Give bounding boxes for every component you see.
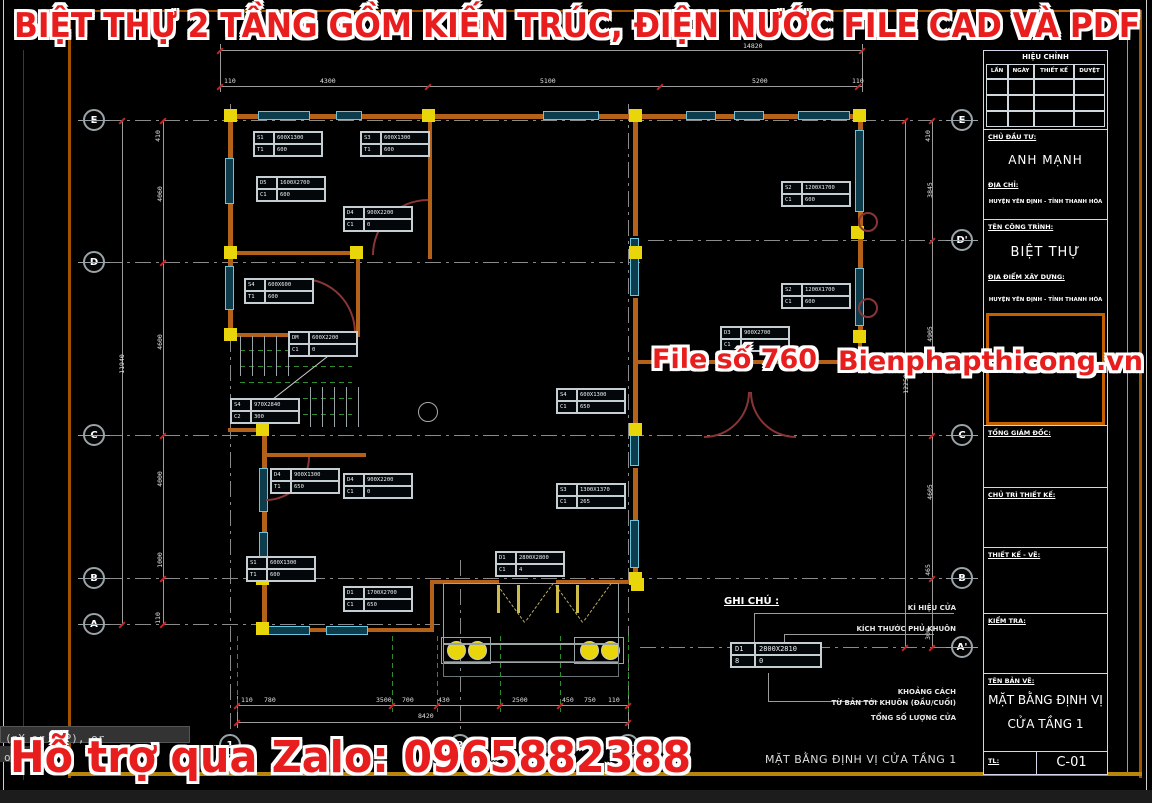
opening-tag-cell: 4 <box>516 564 564 576</box>
opening-tag: D11700X2700C1650 <box>343 586 413 612</box>
opening-tag-cell: 970X2840 <box>251 399 299 411</box>
opening-tag-cell: D3 <box>721 327 741 339</box>
opening-tag-cell: DM <box>289 332 309 344</box>
legend-tag-count: 8 <box>731 655 755 667</box>
door-swing-arc <box>704 392 750 438</box>
rev-col-duyet: DUYỆT <box>1074 64 1105 79</box>
dimension-line <box>237 705 628 706</box>
dimension-tick <box>656 83 663 90</box>
wall-segment <box>356 251 360 337</box>
opening-tag-cell: D4 <box>271 469 291 481</box>
watermark-title: BIỆT THỰ 2 TẦNG GỒM KIẾN TRÚC, ĐIỆN NƯỚC… <box>14 6 1140 46</box>
porch-step-edge <box>443 661 619 677</box>
opening-tag-cell: S4 <box>557 389 577 401</box>
drawing-label: TÊN BẢN VẼ: <box>988 677 1034 685</box>
dimension-line <box>220 86 862 87</box>
opening-tag-cell: S2 <box>782 182 802 194</box>
opening-tag-cell: C1 <box>557 496 577 508</box>
rev-cell <box>1074 79 1105 95</box>
dimension-text: 110 <box>241 696 253 704</box>
column-marker <box>629 246 642 259</box>
legend-label-3: KHOẢNG CÁCH <box>856 688 956 696</box>
window-symbol <box>336 111 362 120</box>
legend-tag: D1 2800X2810 8 0 <box>730 642 822 668</box>
opening-tag-cell: D1 <box>496 552 516 564</box>
opening-tag: S4600X600T1600 <box>244 278 314 304</box>
window-symbol <box>630 520 639 568</box>
rev-cell <box>1034 111 1074 127</box>
plan-caption: MẶT BẰNG ĐỊNH VỊ CỬA TẦNG 1 <box>765 753 980 766</box>
dimension-line <box>220 50 862 51</box>
opening-tag-cell: C1 <box>782 296 802 308</box>
scale-label: TL: <box>988 757 999 765</box>
opening-tag-cell: 1700X2700 <box>364 587 412 599</box>
opening-tag-cell: 600X1300 <box>381 132 429 144</box>
stair-dashed-line <box>240 382 352 383</box>
column-marker <box>256 622 269 635</box>
investor-label: CHỦ ĐẦU TƯ: <box>988 133 1036 141</box>
window-symbol <box>543 111 599 120</box>
opening-tag-cell: D4 <box>344 207 364 219</box>
dimension-text: 110 <box>852 77 864 85</box>
stair-tread <box>276 336 277 376</box>
opening-tag-cell: 600 <box>802 194 850 206</box>
window-symbol <box>268 626 310 635</box>
drawing-name-line1: MẶT BẰNG ĐỊNH VỊ <box>984 693 1107 707</box>
opening-tag-cell: S4 <box>231 399 251 411</box>
legend-tag-code: D1 <box>731 643 755 655</box>
opening-tag: D12800X2800C14 <box>495 551 565 577</box>
grid-bubble-tick <box>946 435 978 436</box>
window-symbol <box>855 268 864 326</box>
opening-tag-cell: T1 <box>245 291 265 303</box>
opening-tag-cell: S1 <box>254 132 274 144</box>
opening-tag-cell: D5 <box>257 177 277 189</box>
stair-tread <box>310 387 311 427</box>
opening-tag-cell: 650 <box>577 401 625 413</box>
window-symbol <box>686 111 716 120</box>
dimension-text: 3845 <box>926 182 934 198</box>
legend-leader-1v <box>754 613 755 643</box>
watermark-zalo: Hỗ trợ qua Zalo: 0965882388 <box>10 732 691 783</box>
grid-line-horizontal <box>106 262 640 263</box>
watermark-site: Bienphapthicong.vn <box>838 346 1143 377</box>
grid-bubble-tick <box>78 624 110 625</box>
floor-plan: EDCBAED'CBA'1231482011043005100520011084… <box>0 0 1152 803</box>
opening-tag: S1600X1300T1600 <box>246 556 316 582</box>
opening-tag: D4900X2200C10 <box>343 206 413 232</box>
section-investor <box>984 129 1107 219</box>
opening-tag: D4900X2200C10 <box>343 473 413 499</box>
opening-tag: S21200X1700C1600 <box>781 181 851 207</box>
rev-col-thietke: THIẾT KẾ <box>1034 64 1074 79</box>
rev-cell <box>1074 111 1105 127</box>
opening-tag: DM600X2200C10 <box>288 331 358 357</box>
wall-segment <box>633 114 638 236</box>
window-symbol <box>326 626 368 635</box>
opening-tag-cell: C1 <box>557 401 577 413</box>
opening-tag: D51600X2700C1600 <box>256 176 326 202</box>
dimension-text: 110 <box>224 77 236 85</box>
dimension-text: 2500 <box>512 696 528 704</box>
column-marker <box>422 109 435 122</box>
opening-tag-cell: 2800X2800 <box>516 552 564 564</box>
extension-line <box>237 636 238 712</box>
door-leaf <box>517 585 520 613</box>
dimension-text: 8420 <box>418 712 434 720</box>
dimension-text: 4000 <box>156 471 164 487</box>
revision-title: HIỆU CHỈNH <box>984 53 1107 61</box>
stair-dashed-line <box>240 366 352 367</box>
address-label: ĐỊA CHỈ: <box>988 181 1018 189</box>
rev-cell <box>1034 95 1074 111</box>
autocad-canvas: EDCBAED'CBA'1231482011043005100520011084… <box>0 0 1152 803</box>
dimension-text: 4300 <box>320 77 336 85</box>
lead-label: CHỦ TRÌ THIẾT KẾ: <box>988 491 1055 499</box>
dimension-text: 465 <box>924 564 932 576</box>
legend-label-5: TỔNG SỐ LƯỢNG CỬA <box>826 714 956 722</box>
opening-tag-cell: S3 <box>557 484 577 496</box>
opening-tag-cell: 600X2200 <box>309 332 357 344</box>
opening-tag: D4900X1300T1650 <box>270 468 340 494</box>
dimension-text: 110 <box>608 696 620 704</box>
window-symbol <box>630 434 639 466</box>
opening-tag-cell: 600X1300 <box>577 389 625 401</box>
rev-cell <box>986 95 1008 111</box>
legend-title: GHI CHÚ : <box>724 596 779 607</box>
column-marker <box>224 246 237 259</box>
project-name: BIỆT THỰ <box>984 245 1107 260</box>
revision-table: LẦN NGÀY THIẾT KẾ DUYỆT <box>986 64 1105 128</box>
column-marker <box>629 423 642 436</box>
location-label: ĐỊA ĐIỂM XÂY DỰNG: <box>988 273 1065 281</box>
opening-tag-cell: C1 <box>782 194 802 206</box>
rev-cell <box>1034 79 1074 95</box>
opening-tag-cell: S4 <box>245 279 265 291</box>
opening-tag: S31300X1370C1265 <box>556 483 626 509</box>
column-marker <box>224 328 237 341</box>
rev-cell <box>1008 79 1034 95</box>
opening-tag-cell: D1 <box>344 587 364 599</box>
dimension-text: 780 <box>264 696 276 704</box>
opening-tag-cell: 0 <box>364 486 412 498</box>
drawing-name-line2: CỬA TẦNG 1 <box>984 717 1107 731</box>
column-marker <box>853 330 866 343</box>
grid-line-horizontal <box>106 578 952 579</box>
dimension-text: 450 <box>562 696 574 704</box>
stair-newel-circle <box>418 402 438 422</box>
grid-bubble-tick <box>78 578 110 579</box>
grid-bubble-tick <box>946 120 978 121</box>
grid-bubble-tick <box>78 262 110 263</box>
opening-tag-cell: 600 <box>802 296 850 308</box>
grid-line-horizontal <box>106 435 952 436</box>
dimension-text: 430 <box>438 696 450 704</box>
dimension-tick <box>424 83 431 90</box>
opening-tag-cell: 600 <box>381 144 429 156</box>
extension-line <box>628 636 629 712</box>
door-leaf <box>497 585 500 613</box>
legend-tag-size: 2800X2810 <box>755 643 821 655</box>
rev-col-ngay: NGÀY <box>1008 64 1034 79</box>
column-marker <box>256 423 269 436</box>
grid-bubble-tick <box>78 120 110 121</box>
window-symbol <box>855 130 864 212</box>
opening-tag-cell: S1 <box>247 557 267 569</box>
opening-tag-cell: T1 <box>271 481 291 493</box>
opening-tag-cell: 600 <box>274 144 322 156</box>
legend-leader-3 <box>768 673 769 701</box>
stair-tread <box>334 387 335 427</box>
grid-bubble-tick <box>946 578 978 579</box>
opening-tag-cell: 600 <box>265 291 313 303</box>
stair-tread <box>240 336 241 376</box>
opening-tag-cell: 900X1300 <box>291 469 339 481</box>
opening-tag-cell: 900X2700 <box>741 327 789 339</box>
opening-tag-cell: 1600X2700 <box>277 177 325 189</box>
opening-tag-cell: 600 <box>267 569 315 581</box>
sheet-number: C-01 <box>1036 755 1107 770</box>
window-symbol <box>258 111 310 120</box>
stair-tread <box>358 387 359 427</box>
opening-tag-cell: 1200X1700 <box>802 284 850 296</box>
dimension-text: 5100 <box>540 77 556 85</box>
window-symbol <box>734 111 764 120</box>
extension-line <box>392 636 393 712</box>
opening-tag-cell: C1 <box>257 189 277 201</box>
door-leaf <box>556 585 559 613</box>
opening-tag-cell: 900X2200 <box>364 474 412 486</box>
legend-ghi-chu: GHI CHÚ : KÍ HIỆU CỬA KÍCH THƯỚC PHỦ KHU… <box>718 596 968 726</box>
title-block: HIỆU CHỈNH LẦN NGÀY THIẾT KẾ DUYỆT CHỦ Đ… <box>983 50 1108 775</box>
dimension-text: 1000 <box>156 552 164 568</box>
opening-tag-cell: D4 <box>344 474 364 486</box>
grid-bubble-tick <box>78 435 110 436</box>
dimension-text: 4605 <box>926 484 934 500</box>
legend-label-2: KÍCH THƯỚC PHỦ KHUÔN <box>816 625 956 633</box>
investor-name: ANH MẠNH <box>984 153 1107 167</box>
dimension-line <box>237 722 628 723</box>
legend-tag-gap: 0 <box>755 655 821 667</box>
opening-tag-cell: T1 <box>247 569 267 581</box>
opening-tag: S1600X1300T1600 <box>253 131 323 157</box>
rev-cell <box>986 79 1008 95</box>
opening-tag-cell: T1 <box>361 144 381 156</box>
grid-line-horizontal <box>106 624 440 625</box>
wall-segment <box>430 580 434 632</box>
wall-segment <box>633 298 638 432</box>
opening-tag: S3600X1300T1600 <box>360 131 430 157</box>
dimension-text: 700 <box>402 696 414 704</box>
wall-segment <box>230 251 358 255</box>
legend-leader-2 <box>784 634 934 635</box>
address-value: HUYỆN YÊN ĐỊNH - TỈNH THANH HÓA <box>984 199 1107 205</box>
extension-line <box>500 636 501 712</box>
opening-tag-cell: 1300X1370 <box>577 484 625 496</box>
opening-tag-cell: S3 <box>361 132 381 144</box>
dimension-text: 110 <box>154 612 162 624</box>
opening-tag-cell: 600X1300 <box>267 557 315 569</box>
dimension-text: 4905 <box>926 326 934 342</box>
opening-tag-cell: S2 <box>782 284 802 296</box>
project-label: TÊN CÔNG TRÌNH: <box>988 223 1053 231</box>
dimension-text: 750 <box>584 696 596 704</box>
opening-tag-cell: 0 <box>364 219 412 231</box>
door-swing-arc <box>750 392 796 438</box>
opening-tag-cell: 0 <box>309 344 357 356</box>
opening-tag: S21200X1700C1600 <box>781 283 851 309</box>
dimension-text: 12250 <box>902 374 910 394</box>
column-marker <box>224 109 237 122</box>
stair-tread <box>346 387 347 427</box>
pilaster-symbol <box>858 298 878 318</box>
stair-tread <box>264 336 265 376</box>
dimension-tick <box>118 621 125 628</box>
pilaster-symbol <box>858 212 878 232</box>
dimension-line <box>932 120 933 647</box>
column-marker <box>350 246 363 259</box>
opening-tag-cell: C1 <box>496 564 516 576</box>
dimension-text: 410 <box>154 130 162 142</box>
opening-tag: S4970X2840C2300 <box>230 398 300 424</box>
grid-bubble-tick <box>946 240 978 241</box>
column-marker <box>631 578 644 591</box>
director-label: TỔNG GIÁM ĐỐC: <box>988 429 1051 437</box>
opening-tag-cell: T1 <box>254 144 274 156</box>
opening-tag-cell: 650 <box>364 599 412 611</box>
opening-tag-cell: 600X1300 <box>274 132 322 144</box>
opening-tag-cell: 600 <box>277 189 325 201</box>
design-label: THIẾT KẾ - VẼ: <box>988 551 1040 559</box>
column-marker <box>629 109 642 122</box>
extension-line <box>560 636 561 712</box>
opening-tag-cell: C1 <box>289 344 309 356</box>
window-symbol <box>225 158 234 204</box>
rev-col-lan: LẦN <box>986 64 1008 79</box>
opening-tag-cell: 265 <box>577 496 625 508</box>
rev-cell <box>1008 111 1034 127</box>
check-label: KIỂM TRA: <box>988 617 1026 625</box>
opening-tag: S4600X1300C1650 <box>556 388 626 414</box>
column-marker <box>853 109 866 122</box>
dimension-text: 410 <box>924 130 932 142</box>
dimension-text: 4060 <box>156 186 164 202</box>
opening-tag-cell: C1 <box>344 599 364 611</box>
opening-tag-cell: C1 <box>344 219 364 231</box>
stair-tread <box>322 387 323 427</box>
rev-cell <box>1008 95 1034 111</box>
porch-step-band <box>443 643 619 663</box>
watermark-file-no: File số 760 <box>652 344 817 375</box>
rev-cell <box>1074 95 1105 111</box>
dimension-text: 4600 <box>156 334 164 350</box>
location-value: HUYỆN YÊN ĐỊNH - TỈNH THANH HÓA <box>984 297 1107 303</box>
window-symbol <box>798 111 850 120</box>
opening-tag-cell: 1200X1700 <box>802 182 850 194</box>
legend-label-4: TỪ BẢN TỚI KHUÔN (ĐẦU/CUỐI) <box>786 699 956 707</box>
opening-tag-cell: 900X2200 <box>364 207 412 219</box>
dimension-text: 11940 <box>118 354 126 374</box>
rev-cell <box>986 111 1008 127</box>
opening-tag-cell: 600X600 <box>265 279 313 291</box>
opening-tag-cell: 650 <box>291 481 339 493</box>
opening-tag-cell: 300 <box>251 411 299 423</box>
dimension-text: 3500 <box>376 696 392 704</box>
dimension-text: 5200 <box>752 77 768 85</box>
opening-tag-cell: C1 <box>344 486 364 498</box>
door-leaf <box>576 585 579 613</box>
opening-tag-cell: C2 <box>231 411 251 423</box>
stair-tread <box>252 336 253 376</box>
legend-leader-1 <box>754 613 954 614</box>
window-symbol <box>225 266 234 310</box>
legend-label-1: KÍ HIỆU CỬA <box>856 604 956 612</box>
